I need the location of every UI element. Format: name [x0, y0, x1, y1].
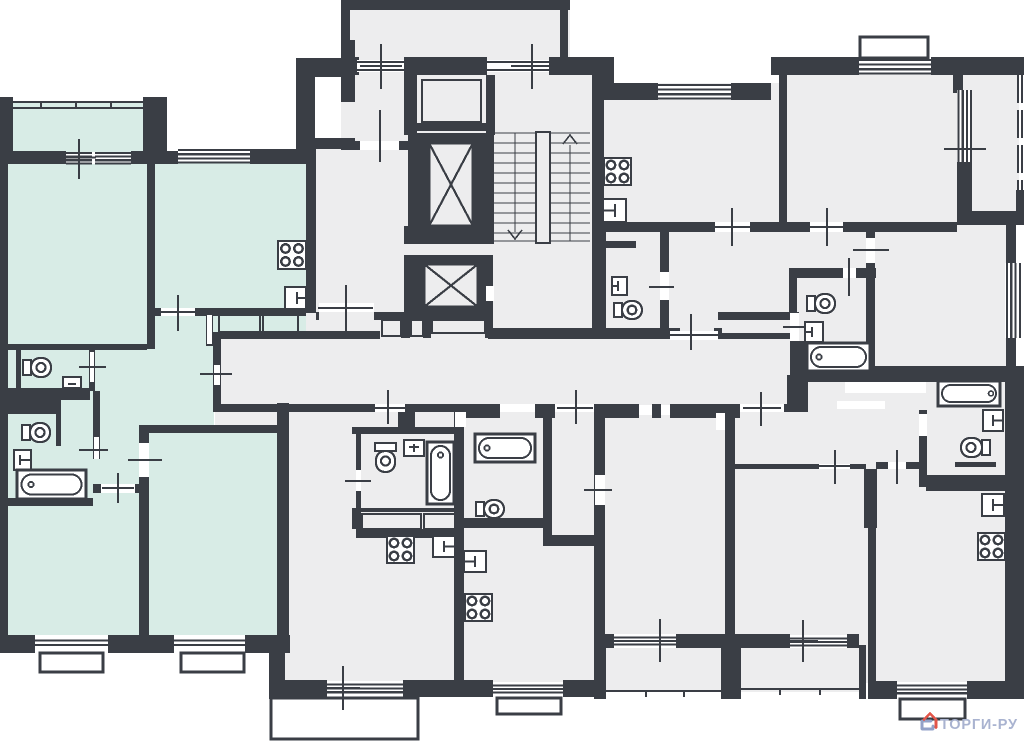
svg-text:ТОРГИ-РУ: ТОРГИ-РУ — [940, 717, 1018, 733]
